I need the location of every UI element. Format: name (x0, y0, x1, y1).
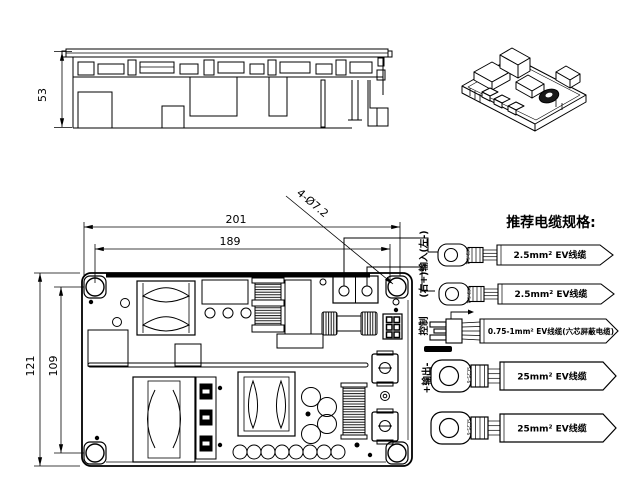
cable-row-input-2: SC2.5-4 2.5mm² EV线缆 (439, 283, 614, 305)
control-connector-6pin (383, 314, 402, 339)
output-terminal-plus (372, 351, 398, 386)
transformer-bottom-center (238, 372, 295, 436)
capacitor-row (233, 445, 345, 459)
board-outline (82, 273, 412, 466)
dim-hole-callout: 4-Ø7.2 (294, 186, 331, 220)
transformer-top (137, 281, 195, 335)
top-view (82, 273, 412, 466)
engineering-drawing-page: 53 (0, 0, 632, 482)
cable-section-title: 推荐电缆规格: (506, 214, 596, 231)
inductor-vertical-top (252, 278, 284, 332)
inductor-vertical-right (341, 383, 367, 439)
cable-label: 2.5mm² EV线缆 (514, 249, 587, 261)
dim-109: 109 (47, 356, 60, 377)
capacitor-cluster (302, 388, 337, 444)
cable-label: 25mm² EV线缆 (517, 423, 586, 435)
side-view (54, 49, 392, 128)
inductor-horizontal (322, 312, 377, 335)
cable-row-output-minus: SC25-6 25mm² EV线缆 (431, 412, 616, 444)
output-terminal-minus (372, 409, 398, 444)
isometric-view (462, 48, 586, 131)
lug-label: SC25-6 (465, 419, 471, 435)
cable-label: 25mm² EV线缆 (517, 371, 586, 383)
cable-section: 推荐电缆规格: (右+)输入(左-) 控制 +输出- SC2.5-4 2.5mm… (418, 214, 618, 444)
lug-label: SC2.5-4 (465, 286, 471, 304)
port-label-input: (右+)输入(左-) (418, 230, 430, 297)
cable-row-input-1: SC2.5-4 2.5mm² EV线缆 (438, 244, 613, 266)
cable-row-control: 0.75-1mm² EV线缆(六芯屏蔽电缆) (424, 310, 618, 353)
input-terminal-block (333, 276, 378, 303)
lug-label: SC2.5-4 (464, 247, 470, 265)
lug-label: SC25-6 (465, 367, 471, 383)
dim-189: 189 (220, 235, 241, 248)
cable-label: 2.5mm² EV线缆 (515, 288, 588, 300)
dim-121: 121 (24, 356, 37, 377)
cable-row-output-plus: SC25-6 25mm² EV线缆 (431, 360, 616, 392)
port-label-control: 控制 (418, 316, 430, 336)
transformer-bottom-left (133, 377, 195, 462)
cable-label: 0.75-1mm² EV线缆(六芯屏蔽电缆) (488, 326, 614, 336)
side-height-dim: 53 (36, 88, 49, 102)
dim-201: 201 (226, 213, 247, 226)
connector-strip (196, 377, 216, 459)
pcb-dimension-drawing: 53 (0, 0, 632, 482)
